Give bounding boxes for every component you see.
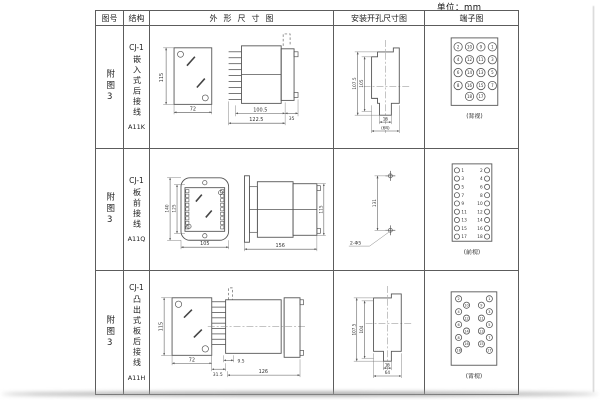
spec-table: 图号 结构 外形尺寸图 安装开孔尺寸图 端子图 附图3 CJ-1 嵌入式后接线 … (95, 10, 519, 395)
terminal-number: 10 (477, 201, 483, 207)
hole-callout: 2-Φ5 (350, 241, 361, 247)
dim-64: 64 (385, 370, 391, 375)
terminal-circle (454, 234, 459, 239)
terminal-number: 12 (477, 209, 483, 215)
mounting-drawing-a11q: 131 2-Φ5 (334, 149, 424, 270)
terminal-square (186, 212, 189, 215)
terminal-circle (454, 226, 459, 231)
terminal-number: 2 (457, 297, 459, 301)
terminal-fins (212, 301, 226, 344)
terminal-number: 11 (478, 57, 484, 62)
terminal-number: 10 (464, 303, 468, 307)
tab (300, 299, 303, 304)
terminal-number: 5 (488, 322, 490, 326)
screw-hole (178, 51, 184, 57)
terminal-number: 8 (480, 193, 483, 199)
terminal-number: 2 (457, 44, 460, 49)
screw-hole (202, 95, 208, 101)
terminal-number: 1 (488, 297, 490, 301)
structure-label: 板前接线 (133, 188, 141, 230)
terminal-number: 5 (491, 70, 494, 75)
figure-label: 附图3 (105, 69, 114, 105)
terminal-square (221, 199, 224, 202)
terminal-number: 6 (480, 184, 483, 190)
terminal-number: 8 (457, 335, 459, 339)
terminal-square (221, 221, 224, 224)
terminal-number: 12 (467, 57, 473, 62)
terminal-number: 18 (467, 94, 473, 99)
terminal-circle (454, 168, 459, 173)
terminal-diagram-a11k: 210914121136141358161571817 (背视) (425, 26, 518, 148)
cell-row1-figure: 附图3 (96, 26, 124, 149)
dim-length: 156 (275, 243, 284, 249)
terminal-number: 2 (480, 168, 483, 174)
mount-hole (203, 234, 207, 238)
page-bottom-shadow (2, 392, 598, 396)
header-terminal-diagram: 端子图 (425, 11, 518, 26)
view-label: (背视) (466, 372, 483, 380)
terminal-grid: 123456789101112131415161718 (454, 168, 489, 240)
terminal-diagram-a11h: 246818101214169111315135717 (背视) (425, 272, 518, 394)
terminal-number: 9 (480, 44, 483, 49)
terminal-number: 7 (461, 193, 464, 199)
mounting-drawing-a11k: 107.5 105 16 (64) (334, 26, 424, 148)
terminal-circle (454, 193, 459, 198)
cell-row1-structure: CJ-1 嵌入式后接线 A11K (124, 26, 150, 149)
terminal-grid: 246818101214169111315135717 (456, 295, 493, 353)
terminal-square (221, 226, 224, 229)
terminal-number: 9 (461, 201, 464, 207)
terminal-number: 4 (457, 57, 460, 62)
cell-row3-figure: 附图3 (96, 271, 124, 394)
terminal-number: 10 (467, 44, 473, 49)
terminal-number: 15 (478, 83, 484, 88)
dim-hole-distance: 131 (372, 199, 378, 207)
terminal-square (221, 203, 224, 206)
cell-row3-mounting: 107.5 104 16 64 (334, 271, 425, 394)
terminal-circle (484, 209, 489, 214)
header-structure: 结构 (124, 11, 150, 26)
dim-length: 126 (259, 369, 268, 375)
terminal-square (221, 217, 224, 220)
dim-depth: 100.5 (253, 107, 267, 113)
terminal-square (186, 203, 189, 206)
terminal-circle (454, 201, 459, 206)
terminal-circle (454, 217, 459, 222)
terminal-circle (484, 176, 489, 181)
terminal-number: 18 (477, 234, 483, 240)
terminal-square (186, 208, 189, 211)
tab (317, 228, 320, 233)
terminal-number: 13 (479, 329, 483, 333)
terminal-circle (454, 176, 459, 181)
relay-body (185, 188, 225, 232)
type-code: A11H (128, 374, 146, 382)
rear-block (284, 297, 300, 357)
terminal-grid: 210914121136141358161571817 (454, 43, 497, 101)
view-label: (前视) (464, 248, 481, 256)
handle-mark (196, 195, 202, 202)
model-label: CJ-1 (129, 283, 144, 292)
terminal-circle (484, 184, 489, 189)
type-code: A11K (128, 123, 145, 131)
terminal-number: 9 (480, 303, 482, 307)
cell-row1-mounting: 107.5 105 16 (64) (334, 26, 425, 149)
dim-flange: 35 (289, 116, 295, 122)
terminal-number: 17 (487, 348, 491, 352)
dim-width: 105 (200, 241, 209, 247)
handle-mark (187, 57, 195, 66)
terminal-square (186, 217, 189, 220)
terminal-number: 3 (461, 176, 464, 182)
terminal-number: 11 (461, 209, 467, 215)
dim-31-5: 31.5 (213, 372, 223, 378)
terminal-diagram-a11q: 123456789101112131415161718 (前视) (425, 149, 518, 270)
terminal-number: 3 (491, 57, 494, 62)
cell-row2-terminal: 123456789101112131415161718 (前视) (425, 149, 518, 271)
terminal-number: 4 (480, 176, 483, 182)
handle-mark (206, 210, 212, 217)
terminal-square (186, 190, 189, 193)
structure-label: 凸出式板后接线 (133, 295, 141, 369)
terminal-square (186, 194, 189, 197)
figure-label: 附图3 (105, 315, 114, 351)
terminal-circle (484, 201, 489, 206)
dim-width: 72 (190, 106, 196, 112)
cell-row1-terminal: 210914121136141358161571817 (背视) (425, 26, 518, 149)
dim-outer-height: 140 (165, 204, 171, 212)
terminal-number: 1 (491, 44, 494, 49)
flange-tab (294, 52, 298, 57)
mount-hole (203, 181, 207, 185)
terminal-number: 16 (467, 83, 473, 88)
terminal-number: 17 (478, 94, 484, 99)
terminal-number: 17 (461, 234, 467, 240)
terminal-number: 13 (478, 70, 484, 75)
dim-inner-height: 125 (172, 204, 178, 212)
terminal-number: 12 (464, 316, 468, 320)
terminal-number: 14 (467, 70, 473, 75)
terminal-circle (484, 193, 489, 198)
dim-105: 105 (359, 79, 365, 87)
screw-hole (202, 345, 208, 351)
mounting-drawing-a11h: 107.5 104 16 64 (334, 272, 424, 394)
view-label: (背视) (466, 112, 483, 120)
terminal-number: 6 (457, 322, 459, 326)
flange (281, 49, 294, 101)
header-figure-number: 图号 (96, 11, 124, 26)
front-view-body (174, 48, 212, 105)
terminal-circle (454, 184, 459, 189)
dim-height: 115 (318, 205, 324, 213)
terminal-circle (454, 209, 459, 214)
terminal-number: 15 (479, 342, 483, 346)
screw-hole (175, 301, 181, 307)
outline-drawing-a11k: 115 72 100.5 35 122.5 (150, 26, 333, 148)
hidden-stub (229, 287, 233, 299)
outline-drawing-a11q: 140 125 105 156 115 (150, 149, 333, 270)
flange-tab (294, 92, 298, 97)
terminal-circle (484, 226, 489, 231)
terminal-number: 18 (456, 348, 460, 352)
cell-row2-structure: CJ-1 板前接线 A11Q (124, 149, 150, 271)
terminal-number: 16 (477, 226, 483, 232)
dim-64: (64) (381, 126, 390, 131)
model-label: CJ-1 (129, 176, 144, 185)
type-code: A11Q (128, 235, 146, 243)
terminal-fins (229, 52, 242, 100)
terminal-block (452, 164, 492, 241)
terminal-number: 7 (488, 335, 490, 339)
dim-width: 72 (189, 357, 195, 363)
header-outline-dimensions: 外形尺寸图 (150, 11, 334, 26)
terminal-number: 14 (464, 329, 469, 333)
cell-row1-outline: 115 72 100.5 35 122.5 (150, 26, 334, 149)
terminal-square (186, 199, 189, 202)
cell-row3-structure: CJ-1 凸出式板后接线 A11H (124, 271, 150, 394)
dim-104: 104 (359, 325, 364, 333)
dim-107-5: 107.5 (351, 323, 356, 335)
handle-mark (184, 309, 192, 317)
cell-row3-terminal: 246818101214169111315135717 (背视) (425, 271, 518, 394)
terminal-number: 14 (477, 218, 483, 224)
cell-row2-outline: 140 125 105 156 115 (150, 149, 334, 271)
handle-mark (197, 79, 205, 88)
outline-drawing-a11h: 115 72 9.5 31.5 126 (150, 272, 333, 394)
terminal-number: 7 (491, 83, 494, 88)
dim-height: 115 (159, 73, 165, 82)
figure-label: 附图3 (105, 192, 114, 228)
terminal-square (221, 208, 224, 211)
cell-row2-figure: 附图3 (96, 149, 124, 271)
tab (317, 186, 320, 191)
front-flange (244, 176, 249, 242)
header-mounting-hole-dimensions: 安装开孔尺寸图 (334, 11, 425, 26)
dim-9-5: 9.5 (238, 358, 245, 364)
cell-row2-mounting: 131 2-Φ5 (334, 149, 425, 271)
terminal-number: 1 (461, 168, 464, 174)
dim-16: 16 (383, 117, 389, 122)
terminal-number: 16 (464, 342, 468, 346)
cell-row3-outline: 115 72 9.5 31.5 126 (150, 271, 334, 394)
terminal-block (451, 291, 497, 364)
page-right-edge (593, 6, 594, 392)
dim-height: 115 (159, 321, 165, 330)
dim-overall: 122.5 (249, 117, 263, 123)
tab (300, 350, 303, 355)
terminal-strip (186, 190, 224, 229)
terminal-number: 11 (479, 316, 483, 320)
terminal-circle (484, 168, 489, 173)
terminal-circle (484, 217, 489, 222)
terminal-number: 4 (457, 309, 460, 313)
dim-107-5: 107.5 (352, 77, 358, 89)
structure-label: 嵌入式后接线 (133, 55, 141, 118)
handle-mark (194, 329, 202, 337)
terminal-number: 3 (488, 309, 490, 313)
terminal-number: 8 (457, 83, 460, 88)
terminal-number: 5 (461, 184, 464, 190)
terminal-number: 6 (457, 70, 460, 75)
model-label: CJ-1 (129, 43, 144, 52)
terminal-number: 15 (461, 226, 467, 232)
terminal-square (221, 212, 224, 215)
front-view-body (172, 297, 212, 355)
hidden-stub (283, 34, 290, 46)
terminal-number: 13 (461, 218, 467, 224)
terminal-circle (484, 234, 489, 239)
dim-16: 16 (385, 362, 391, 367)
